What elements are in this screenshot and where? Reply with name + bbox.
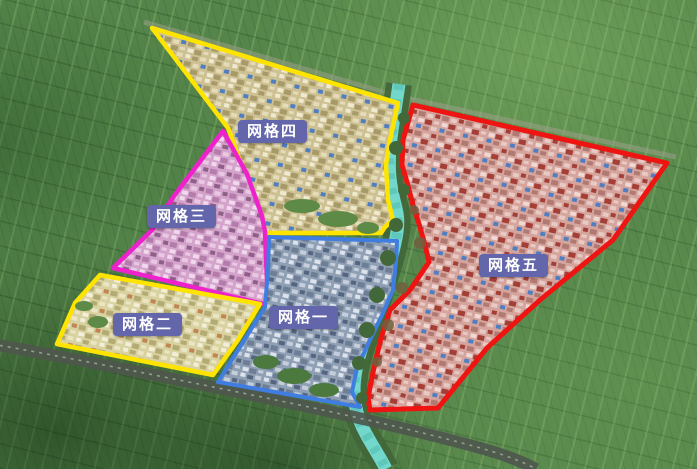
zone-label-grid-1[interactable]: 网格一	[269, 306, 338, 329]
zone-overlay-layer	[0, 0, 697, 469]
zone-label-grid-3[interactable]: 网格三	[147, 205, 216, 228]
zone-label-grid-5[interactable]: 网格五	[479, 254, 548, 277]
zone-label-grid-4[interactable]: 网格四	[238, 120, 307, 143]
aerial-map: 网格四 网格三 网格二 网格一 网格五	[0, 0, 697, 469]
zone-label-grid-2[interactable]: 网格二	[113, 313, 182, 336]
